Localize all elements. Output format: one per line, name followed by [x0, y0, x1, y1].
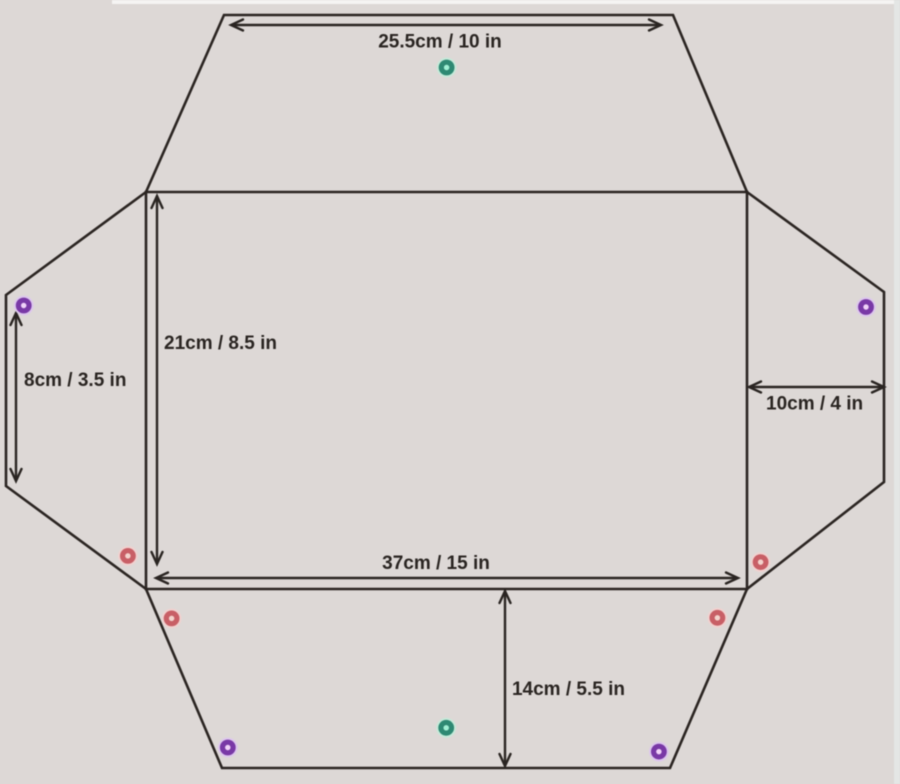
svg-text:8cm / 3.5 in: 8cm / 3.5 in: [24, 370, 126, 391]
svg-text:14cm / 5.5 in: 14cm / 5.5 in: [512, 679, 625, 700]
svg-text:37cm / 15 in: 37cm / 15 in: [382, 553, 490, 574]
svg-text:25.5cm / 10 in: 25.5cm / 10 in: [378, 32, 502, 53]
svg-text:21cm / 8.5 in: 21cm / 8.5 in: [164, 333, 277, 354]
svg-text:10cm / 4 in: 10cm / 4 in: [766, 394, 863, 415]
